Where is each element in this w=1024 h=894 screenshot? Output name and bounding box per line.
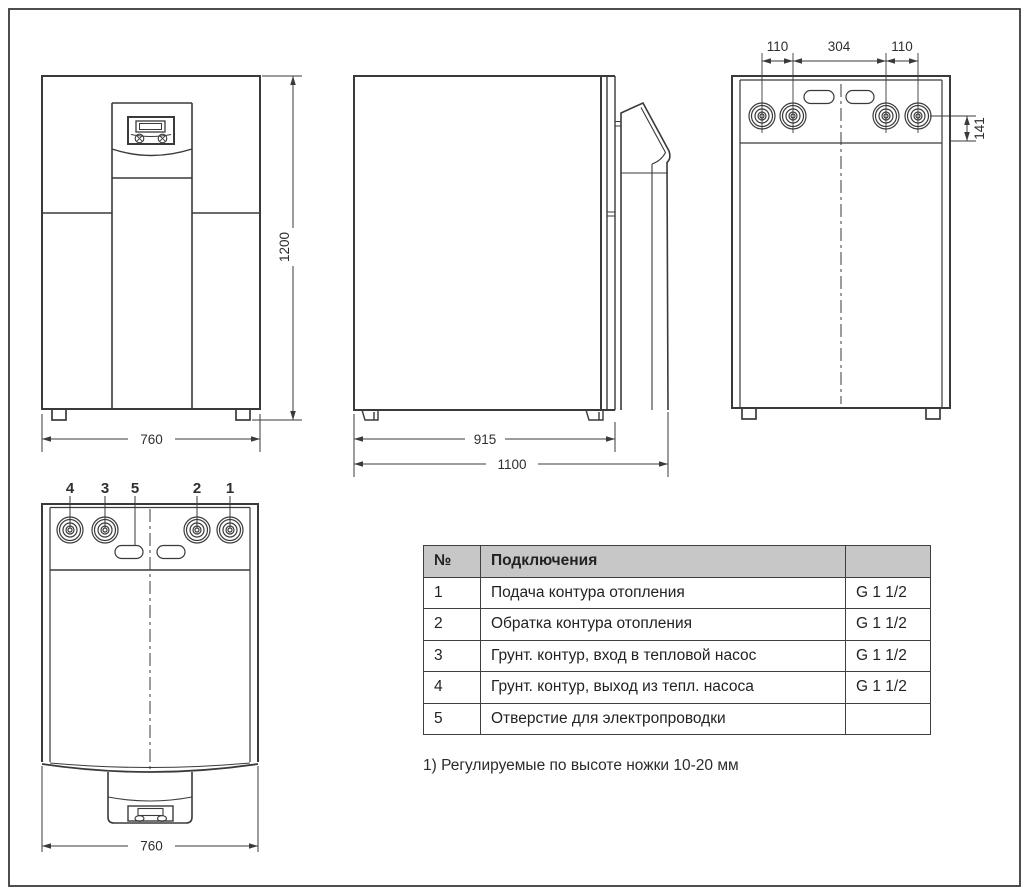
- dim-front-width-label: 760: [140, 432, 163, 447]
- callout-5: 5: [131, 480, 139, 497]
- cell-num: 4: [424, 672, 481, 704]
- header-num: №: [424, 546, 481, 578]
- dim-rear-center-label: 304: [828, 39, 851, 54]
- table-header-row: № Подключения: [424, 546, 931, 578]
- callout-4: 4: [66, 480, 75, 497]
- cell-desc: Грунт. контур, выход из тепл. насоса: [481, 672, 846, 704]
- dim-rear-vertical-label: 141: [972, 117, 987, 140]
- footnote: 1) Регулируемые по высоте ножки 10-20 мм: [423, 757, 739, 775]
- cell-desc: Обратка контура отопления: [481, 609, 846, 641]
- foot: [926, 408, 940, 419]
- cell-desc: Подача контура отопления: [481, 577, 846, 609]
- cell-num: 1: [424, 577, 481, 609]
- cell-desc: Отверстие для электропроводки: [481, 703, 846, 735]
- duct: [621, 103, 670, 410]
- header-size: [846, 546, 931, 578]
- front-view: [42, 76, 260, 420]
- cell-desc: Грунт. контур, вход в тепловой насос: [481, 640, 846, 672]
- manual-page: 760 1200: [0, 0, 1024, 894]
- foot: [52, 409, 66, 420]
- dim-front-height-label: 1200: [277, 232, 292, 262]
- foot: [586, 410, 603, 420]
- callout-3: 3: [101, 480, 109, 497]
- rear-view: [732, 53, 950, 419]
- cell-size: G 1 1/2: [846, 577, 931, 609]
- dim-side-depth-label: 915: [474, 432, 497, 447]
- front-panel-top: [108, 772, 192, 823]
- top-view: [42, 496, 258, 823]
- cell-num: 2: [424, 609, 481, 641]
- table-row: 4 Грунт. контур, выход из тепл. насоса G…: [424, 672, 931, 704]
- dim-top-width-label: 760: [140, 839, 163, 854]
- side-view: [354, 76, 670, 420]
- cell-size: [846, 703, 931, 735]
- callout-2: 2: [193, 480, 201, 497]
- foot: [742, 408, 756, 419]
- dim-rear-left-label: 110: [767, 39, 789, 54]
- table-row: 5 Отверстие для электропроводки: [424, 703, 931, 735]
- cell-num: 3: [424, 640, 481, 672]
- callout-1: 1: [226, 480, 234, 497]
- dim-side-total-depth-label: 1100: [497, 457, 526, 472]
- header-name: Подключения: [481, 546, 846, 578]
- table-row: 1 Подача контура отопления G 1 1/2: [424, 577, 931, 609]
- cell-size: G 1 1/2: [846, 609, 931, 641]
- foot: [236, 409, 250, 420]
- cell-size: G 1 1/2: [846, 672, 931, 704]
- connections-table: № Подключения 1 Подача контура отопления…: [423, 545, 931, 735]
- dim-rear-offsets: [762, 58, 918, 64]
- cell-num: 5: [424, 703, 481, 735]
- control-panel: [128, 117, 174, 144]
- dim-rear-right-label: 110: [891, 39, 913, 54]
- foot: [362, 410, 378, 420]
- cell-size: G 1 1/2: [846, 640, 931, 672]
- table-row: 3 Грунт. контур, вход в тепловой насос G…: [424, 640, 931, 672]
- table-row: 2 Обратка контура отопления G 1 1/2: [424, 609, 931, 641]
